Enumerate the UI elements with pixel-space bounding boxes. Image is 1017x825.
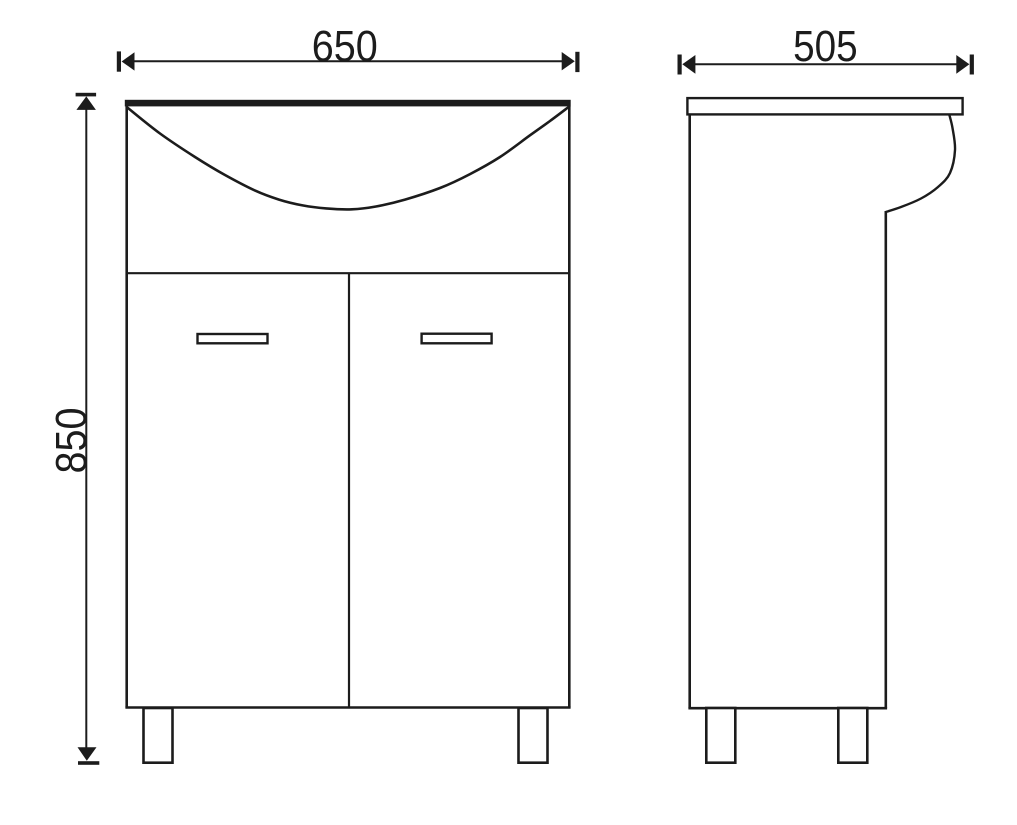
svg-text:650: 650 [312, 22, 378, 71]
svg-text:850: 850 [47, 408, 96, 474]
svg-text:505: 505 [793, 22, 858, 71]
